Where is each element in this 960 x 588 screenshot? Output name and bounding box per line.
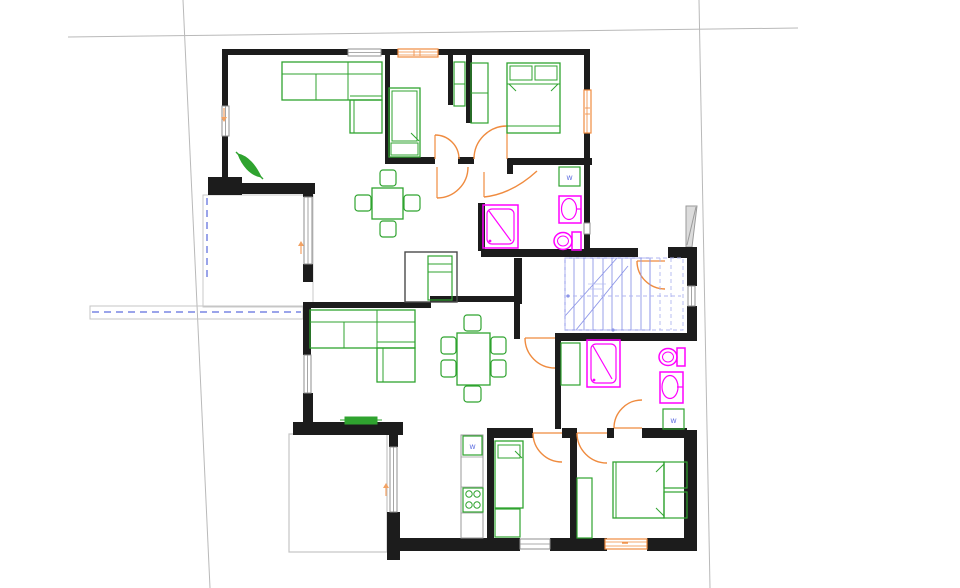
toilet-upper-shape (554, 233, 572, 250)
stove-shape (463, 488, 483, 512)
stove-shape (466, 502, 472, 508)
bed-small-bedroom-shape (498, 445, 520, 458)
walls-shape (381, 49, 398, 55)
sofa-lower-living (310, 310, 415, 382)
door-small-bedroom (533, 433, 562, 462)
toilet-upper-shape (558, 236, 569, 246)
window-bath-east (584, 223, 590, 234)
staircase-shape (611, 328, 614, 331)
toilet-upper (554, 232, 581, 250)
arrow-window-kitchen (383, 483, 389, 496)
sink-lower-shape (662, 376, 678, 399)
washing-machine-upper-bath: w (559, 167, 580, 186)
washing-machine-upper-bath-shape: w (566, 173, 573, 182)
walls-shape (487, 438, 494, 538)
sofa-upper-living (282, 62, 382, 133)
site-boundary-east (699, 0, 710, 588)
dining-table-lower-shape (441, 337, 456, 354)
site-boundary-east-shape (699, 0, 710, 588)
walls-shape (550, 538, 607, 551)
walls-shape (570, 438, 577, 538)
shower-upper (483, 205, 518, 248)
bed-small-bedroom-shape (515, 451, 522, 458)
window-porch (304, 197, 312, 264)
walls-shape (222, 49, 228, 106)
toilet-lower-shape (677, 348, 685, 366)
walls-shape (389, 433, 398, 447)
walls-shape (222, 136, 228, 177)
walls-shape (687, 306, 697, 335)
door-bedroom2-shape (474, 126, 507, 159)
bed-bedroom2-shape (509, 84, 516, 91)
door-lower-entry-shape (525, 338, 555, 368)
window-south-small (520, 539, 550, 549)
staircase-shape (565, 258, 617, 316)
walls-shape (303, 264, 313, 282)
shower-upper-shape (489, 211, 511, 241)
entrance-porch (203, 195, 313, 307)
staircase-shape (565, 258, 683, 330)
walls-shape (590, 248, 638, 257)
utility-closet (405, 252, 457, 302)
bed-bedroom1-shape (389, 88, 420, 157)
walls-shape (514, 296, 520, 339)
dining-table-upper-shape (355, 195, 371, 211)
walls-shape (458, 157, 474, 164)
sofa-upper-living-shape (282, 62, 382, 100)
utility-closet-shape (405, 252, 457, 302)
bed-bedroom2-shape (551, 84, 558, 91)
walls-shape (647, 538, 687, 551)
walls-shape (684, 430, 697, 551)
washing-machine-lower-bath: w (663, 409, 684, 429)
window-stairhall (688, 286, 695, 306)
bed-bedroom1-shape (392, 91, 417, 141)
walls-shape (687, 258, 697, 286)
site-boundary-north-shape (68, 28, 798, 37)
window-orange-south-shape (605, 539, 647, 549)
door-bedroom1-shape (435, 135, 459, 159)
terrace (289, 434, 387, 552)
walls-shape (607, 428, 614, 438)
dining-table-upper-shape (380, 170, 396, 186)
closet-cabinet (428, 256, 452, 300)
entrance-porch-shape (203, 195, 313, 307)
staircase (565, 258, 683, 332)
window-west-upper (222, 106, 229, 136)
site-boundary-north (68, 28, 798, 37)
washing-machine-kitchen: w (463, 436, 482, 455)
bed-bedroom2-shape (507, 63, 560, 133)
window-orange-east-shape (584, 90, 591, 133)
bed-bedroom2 (507, 63, 560, 133)
walls (208, 49, 697, 560)
door-lower-bedroom-shape (577, 433, 607, 463)
walls-shape (507, 158, 592, 165)
site-boundary-west-shape (183, 0, 210, 588)
bed-lower-bedroom (613, 462, 687, 518)
window-west-lower (304, 355, 311, 393)
walls-shape (478, 203, 485, 251)
walls-shape (222, 49, 348, 55)
dining-table-lower-shape (464, 386, 481, 402)
bed-bedroom2-shape (535, 66, 557, 80)
wardrobe-small-bedroom-shape (495, 509, 520, 537)
site-boundary-west (183, 0, 210, 588)
window-orange-top (398, 49, 438, 57)
shower-lower-shape (593, 346, 612, 379)
walls-shape (398, 538, 520, 551)
dining-table-upper-shape (380, 221, 396, 237)
closet-cabinet-shape (428, 256, 452, 300)
washing-machine-kitchen-shape: w (469, 442, 476, 451)
window-top-left (348, 49, 381, 56)
wardrobe-bedroom1 (454, 62, 465, 106)
toilet-upper-shape (572, 232, 581, 250)
wardrobe-small-bedroom (495, 509, 520, 537)
sofa-upper-living-shape (350, 100, 382, 133)
door-bedroom1 (435, 135, 459, 159)
window-bath-east-shape (584, 223, 590, 234)
stove-shape (466, 491, 472, 497)
dining-table-upper-shape (372, 188, 403, 219)
bed-small-bedroom (495, 441, 523, 508)
door-upper-bathroom-shape (484, 171, 537, 197)
door-bedroom2 (474, 126, 507, 159)
bed-bedroom1-shape (411, 133, 419, 141)
arrow-window-kitchen-shape (383, 483, 389, 488)
staircase-shape (566, 294, 569, 297)
bed-bedroom1 (389, 88, 420, 157)
door-lower-bathroom-shape (614, 400, 642, 428)
floor-plan-page: www (0, 0, 960, 588)
walls-shape (562, 428, 577, 438)
wardrobe-lower-bedroom-shape (577, 478, 592, 538)
bed-lower-bedroom-shape (664, 462, 687, 488)
stove (463, 488, 483, 512)
shower-lower-shape (593, 379, 596, 382)
dining-table-lower-shape (491, 337, 506, 354)
sink-lower (660, 372, 683, 403)
toilet-lower-shape (659, 349, 677, 366)
shower-lower (587, 340, 620, 387)
stove-shape (474, 491, 480, 497)
dining-table-upper-shape (404, 195, 420, 211)
walls-shape (303, 302, 431, 308)
walls-shape (507, 158, 513, 174)
bed-lower-bedroom-shape (656, 464, 664, 472)
site-ramp-wedge (686, 206, 697, 247)
door-lower-entry (525, 338, 555, 368)
washing-machine-lower-bath-shape: w (670, 416, 677, 425)
floor-plan-canvas: www (0, 0, 960, 588)
shower-upper-shape (489, 240, 492, 243)
bed-bedroom2-shape (510, 66, 532, 80)
window-orange-top-shape (398, 49, 438, 57)
door-upper-living (437, 167, 468, 198)
walls-shape (584, 55, 590, 90)
arrow-window-porch (298, 241, 304, 254)
walls-shape (303, 393, 313, 422)
bed-lower-bedroom-shape (613, 462, 664, 518)
walls-shape (487, 428, 533, 438)
toilet-lower (659, 348, 685, 366)
entry-walkway (90, 306, 303, 319)
bed-lower-bedroom-shape (656, 508, 664, 516)
walls-shape (555, 333, 697, 341)
dining-table-upper (355, 170, 420, 237)
walls-shape (385, 157, 435, 164)
dining-table-lower-shape (464, 315, 481, 331)
walls-shape (584, 234, 590, 251)
dining-table-lower-shape (441, 360, 456, 377)
cabinet-lower-bath-shape (561, 343, 580, 385)
sink-upper-shape (562, 199, 577, 220)
door-upper-bathroom (484, 171, 537, 197)
walls-shape (668, 247, 697, 258)
door-lower-bathroom (614, 400, 642, 428)
door-lower-bedroom (577, 433, 607, 463)
arrow-window-porch-shape (298, 241, 304, 246)
bed-small-bedroom-shape (495, 441, 523, 508)
door-upper-living-shape (437, 167, 468, 198)
toilet-lower-shape (663, 352, 674, 362)
wardrobe-bedroom2 (471, 63, 488, 123)
walls-shape (208, 177, 242, 195)
dining-table-lower (441, 315, 506, 402)
dining-table-lower-shape (457, 333, 490, 385)
walls-shape (584, 133, 590, 223)
cabinet-lower-bath (561, 343, 580, 385)
plant (236, 152, 263, 179)
walls-shape (387, 512, 400, 560)
window-orange-east (584, 90, 591, 133)
plant-shape (236, 152, 263, 179)
window-kitchen (390, 447, 397, 512)
sink-upper (559, 196, 581, 223)
walls-shape (448, 55, 453, 105)
stove-shape (474, 502, 480, 508)
walls-shape (303, 188, 313, 197)
walls-shape (555, 341, 561, 429)
walls-shape (430, 296, 520, 302)
bed-lower-bedroom-shape (664, 492, 687, 518)
dining-table-lower-shape (491, 360, 506, 377)
wardrobe-lower-bedroom (577, 478, 592, 538)
bed-bedroom1-shape (391, 143, 418, 155)
wall-shelf (340, 417, 382, 424)
terrace-shape (289, 434, 387, 552)
window-orange-south (605, 539, 647, 549)
walls-shape (438, 49, 590, 55)
door-small-bedroom-shape (533, 433, 562, 462)
